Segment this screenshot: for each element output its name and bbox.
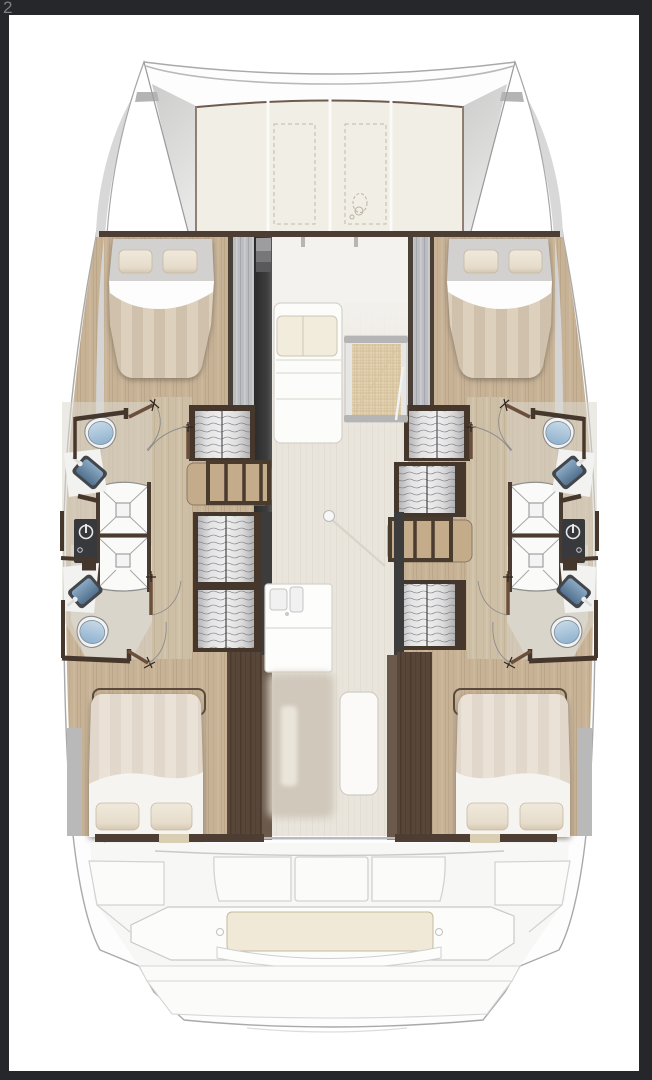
svg-text:2: 2 bbox=[3, 0, 12, 17]
